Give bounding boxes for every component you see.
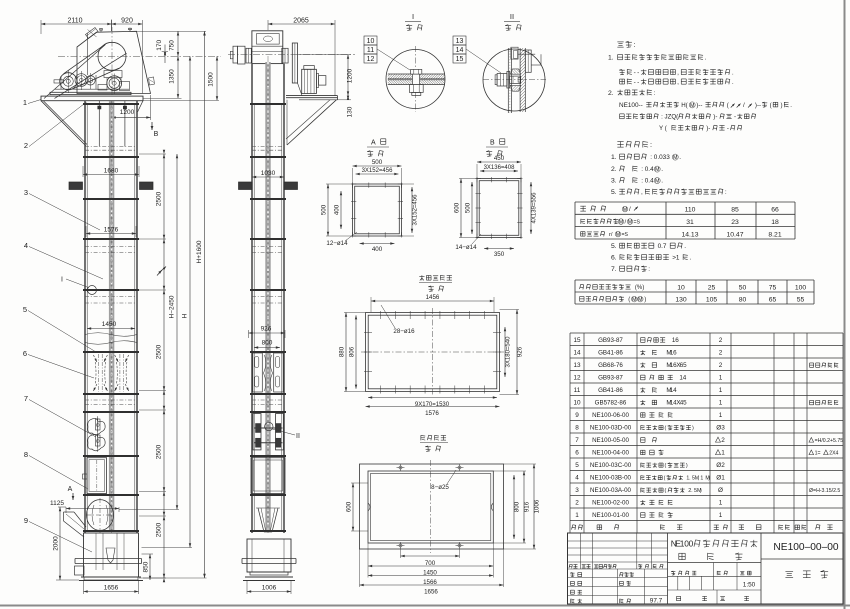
svg-text:8: 8 <box>575 425 579 432</box>
svg-text:GB93-87: GB93-87 <box>598 375 623 382</box>
svg-text:I: I <box>61 277 63 284</box>
svg-text:18: 18 <box>771 219 779 226</box>
svg-text:1: 1 <box>575 512 579 519</box>
svg-text:.: . <box>790 102 792 109</box>
svg-text:): ) <box>700 488 702 494</box>
svg-text:110: 110 <box>685 207 696 214</box>
svg-text:5.: 5. <box>611 189 617 196</box>
svg-text:Ø1: Ø1 <box>716 475 725 482</box>
svg-text:,: , <box>641 189 643 196</box>
svg-text:14: 14 <box>573 350 581 357</box>
svg-text:3: 3 <box>24 188 28 197</box>
svg-text:1: 1 <box>721 450 725 457</box>
svg-text:GB41-86: GB41-86 <box>598 387 623 394</box>
svg-text:/: / <box>743 102 745 109</box>
svg-text:Ø=H-3.15/2.5: Ø=H-3.15/2.5 <box>809 488 840 494</box>
svg-text:): ) <box>692 426 694 432</box>
svg-text:600: 600 <box>454 202 461 213</box>
svg-text:28−ø16: 28−ø16 <box>393 328 415 335</box>
svg-text:1680: 1680 <box>104 168 119 175</box>
svg-text:A: A <box>371 140 376 147</box>
svg-text:926: 926 <box>261 326 272 333</box>
svg-text:Ø: Ø <box>718 487 723 494</box>
svg-text:12: 12 <box>573 375 581 382</box>
svg-text:916: 916 <box>524 501 531 512</box>
svg-text:-: - <box>637 69 639 76</box>
svg-text:.: . <box>689 476 690 482</box>
svg-text:4: 4 <box>24 241 28 250</box>
svg-text:)--: )-- <box>755 102 761 109</box>
svg-text:14.13: 14.13 <box>681 231 698 238</box>
svg-text:1: 1 <box>719 412 723 419</box>
svg-text:5: 5 <box>683 362 687 369</box>
svg-text:Y (: Y ( <box>659 125 668 132</box>
svg-text:100: 100 <box>795 285 807 292</box>
svg-text:6.: 6. <box>611 255 617 262</box>
svg-text:1.: 1. <box>608 55 614 62</box>
svg-text:(: ( <box>665 463 667 469</box>
svg-text:NE100-03C-00: NE100-03C-00 <box>590 462 632 469</box>
svg-text:6: 6 <box>673 350 677 357</box>
svg-text:1: 1 <box>719 500 723 507</box>
svg-text:65: 65 <box>769 297 777 304</box>
svg-text:=S: =S <box>622 232 629 238</box>
svg-text:)--: )-- <box>696 102 702 109</box>
svg-text:800: 800 <box>262 340 273 347</box>
svg-text:2500: 2500 <box>156 522 163 537</box>
svg-text:750: 750 <box>169 40 176 51</box>
svg-text:.: . <box>690 255 692 262</box>
svg-text:600: 600 <box>346 501 353 512</box>
svg-text:66: 66 <box>771 207 779 214</box>
svg-text:: 0.4: : 0.4 <box>641 166 654 173</box>
svg-text:NE100-03D-00: NE100-03D-00 <box>590 425 632 432</box>
svg-text:4: 4 <box>575 475 579 482</box>
svg-text:GB68-76: GB68-76 <box>598 362 623 369</box>
svg-text:4: 4 <box>683 375 687 382</box>
svg-text:.: . <box>732 79 734 86</box>
svg-text:8−ø25: 8−ø25 <box>431 484 449 491</box>
svg-text:2065: 2065 <box>293 18 309 25</box>
svg-text:2X4: 2X4 <box>829 451 838 457</box>
svg-text:2000: 2000 <box>53 536 60 551</box>
svg-text:/: / <box>629 206 631 213</box>
svg-text:130: 130 <box>675 297 687 304</box>
svg-text:4X139=556: 4X139=556 <box>532 192 538 224</box>
svg-text:14−ø14: 14−ø14 <box>455 244 477 251</box>
svg-text:B: B <box>154 131 159 138</box>
svg-text:850: 850 <box>143 561 150 572</box>
svg-text:1: 1 <box>719 375 723 382</box>
svg-text:0: 0 <box>689 539 694 549</box>
svg-text:1656: 1656 <box>424 589 438 596</box>
svg-text:1006: 1006 <box>534 499 541 513</box>
svg-text:3.: 3. <box>611 178 617 185</box>
svg-text:1: 1 <box>700 476 703 482</box>
svg-text:15: 15 <box>573 337 581 344</box>
svg-text:NE100-03B-00: NE100-03B-00 <box>590 475 631 482</box>
svg-text:500: 500 <box>465 202 472 213</box>
svg-text:3X136=408: 3X136=408 <box>484 165 516 171</box>
svg-text:170: 170 <box>156 39 163 50</box>
svg-text:10: 10 <box>677 285 685 292</box>
svg-text:II: II <box>510 12 514 21</box>
svg-text:0.7: 0.7 <box>658 243 667 250</box>
svg-text:11: 11 <box>574 387 581 394</box>
svg-text:13: 13 <box>573 362 581 369</box>
svg-text:: 0.033: : 0.033 <box>650 154 670 161</box>
svg-text:1030: 1030 <box>261 170 276 177</box>
svg-text:1656: 1656 <box>104 585 119 592</box>
svg-text:12: 12 <box>367 56 375 63</box>
svg-text:6: 6 <box>675 337 679 344</box>
svg-text:5: 5 <box>23 305 27 314</box>
svg-text:3: 3 <box>575 487 579 494</box>
svg-text:80: 80 <box>739 297 747 304</box>
svg-text:GB5782-86: GB5782-86 <box>595 400 627 407</box>
svg-text:NE100-05-00: NE100-05-00 <box>592 437 629 444</box>
svg-text:=H/0.2+5.75: =H/0.2+5.75 <box>815 438 844 444</box>
svg-text:15: 15 <box>456 56 464 63</box>
svg-text:2: 2 <box>719 350 723 357</box>
svg-text:12−ø14: 12−ø14 <box>326 240 348 247</box>
svg-text:14: 14 <box>456 47 464 54</box>
svg-text:500: 500 <box>372 159 383 166</box>
svg-text:3X152=456: 3X152=456 <box>413 194 419 226</box>
svg-text:NE100-04-00: NE100-04-00 <box>592 450 629 457</box>
svg-text:1576: 1576 <box>104 227 119 234</box>
svg-text:1200: 1200 <box>120 109 135 116</box>
svg-text:1200: 1200 <box>347 68 354 83</box>
svg-text:400: 400 <box>372 246 383 253</box>
svg-text:)-: )- <box>713 114 717 121</box>
svg-text:B: B <box>490 140 495 147</box>
svg-text:7.: 7. <box>611 266 617 273</box>
svg-text:2110: 2110 <box>67 18 82 25</box>
svg-text:,: , <box>677 69 679 76</box>
svg-text:2: 2 <box>719 362 723 369</box>
svg-text:2500: 2500 <box>156 444 163 459</box>
svg-text:6: 6 <box>575 450 579 457</box>
svg-text:-: - <box>634 79 636 86</box>
svg-text:=S: =S <box>634 220 641 226</box>
svg-text:13: 13 <box>456 38 464 45</box>
svg-text:.: . <box>679 154 681 161</box>
svg-text:2.: 2. <box>611 166 617 173</box>
svg-text:II: II <box>296 433 300 440</box>
svg-text:GB93-87: GB93-87 <box>598 337 623 344</box>
svg-text:23: 23 <box>731 219 739 226</box>
svg-text:1: 1 <box>719 400 723 407</box>
svg-text:): ) <box>708 476 710 482</box>
svg-text:(: ( <box>628 297 630 303</box>
svg-text:I: I <box>412 12 414 21</box>
svg-text:-: - <box>634 69 636 76</box>
svg-text:9: 9 <box>24 516 28 525</box>
svg-text::: : <box>725 189 727 196</box>
svg-text:1=: 1= <box>815 451 821 457</box>
svg-text:,: , <box>677 79 679 86</box>
svg-text:11: 11 <box>367 47 374 54</box>
svg-text:.: . <box>661 178 663 185</box>
svg-text:(: ( <box>665 488 667 494</box>
svg-text:): ) <box>686 463 688 469</box>
svg-text:r/: r/ <box>609 232 613 238</box>
svg-text:.: . <box>684 243 686 250</box>
svg-text:7: 7 <box>575 437 579 444</box>
svg-text:Ø3: Ø3 <box>716 425 725 432</box>
svg-text:1006: 1006 <box>262 585 277 592</box>
svg-text:85: 85 <box>731 207 739 214</box>
svg-text:NE100-03A-00: NE100-03A-00 <box>590 487 631 494</box>
svg-text:75: 75 <box>769 285 777 292</box>
svg-text:3X152=456: 3X152=456 <box>362 168 394 174</box>
svg-text:,: , <box>698 476 699 482</box>
svg-text:1: 1 <box>23 98 27 107</box>
svg-text:6: 6 <box>23 349 27 358</box>
svg-text:): ) <box>780 102 782 109</box>
svg-text:(: ( <box>664 476 666 482</box>
svg-text:NE100-02-00: NE100-02-00 <box>592 500 629 507</box>
svg-text:7: 7 <box>24 394 28 403</box>
svg-text:1: 1 <box>719 512 723 519</box>
svg-text:.: . <box>661 166 663 173</box>
svg-text:10: 10 <box>573 400 581 407</box>
svg-text:9X170=1530: 9X170=1530 <box>415 402 450 408</box>
svg-text:NE100–00–00: NE100–00–00 <box>773 542 838 553</box>
svg-text:1:50: 1:50 <box>743 581 756 588</box>
svg-text:500: 500 <box>321 204 328 215</box>
svg-text:880: 880 <box>339 346 346 357</box>
svg-text:H: H <box>182 313 189 318</box>
svg-text:NE100-06-00: NE100-06-00 <box>592 412 629 419</box>
svg-text::: : <box>654 90 656 97</box>
svg-text:2500: 2500 <box>156 191 163 206</box>
svg-text:H−2450: H−2450 <box>169 295 176 318</box>
svg-text:-: - <box>734 114 736 121</box>
svg-text::: : <box>650 140 652 149</box>
svg-text:1576: 1576 <box>425 410 439 417</box>
svg-text:350: 350 <box>494 251 505 258</box>
svg-text:50: 50 <box>739 285 747 292</box>
svg-text:(%): (%) <box>635 285 644 291</box>
svg-text:-: - <box>727 125 729 132</box>
svg-text:450: 450 <box>494 155 505 162</box>
svg-text:1125: 1125 <box>50 500 64 507</box>
svg-text:2500: 2500 <box>156 344 163 359</box>
svg-text:2: 2 <box>721 437 725 444</box>
svg-text:Ø2: Ø2 <box>716 462 725 469</box>
svg-text::: : <box>634 40 636 49</box>
svg-text:8.21: 8.21 <box>768 231 781 238</box>
svg-text:-: - <box>637 79 639 86</box>
svg-text::: : <box>648 266 650 273</box>
svg-text:3X180=540: 3X180=540 <box>506 336 512 368</box>
svg-text:): ) <box>644 297 646 303</box>
svg-text:H+1600: H+1600 <box>196 240 203 263</box>
svg-text:>1: >1 <box>672 255 680 262</box>
svg-text:5.: 5. <box>611 243 617 250</box>
svg-text:GB41-86: GB41-86 <box>598 350 623 357</box>
svg-text:NE100--: NE100-- <box>619 102 643 109</box>
svg-text:.: . <box>732 69 734 76</box>
svg-text:1: 1 <box>719 387 723 394</box>
svg-text:2: 2 <box>24 141 28 150</box>
svg-text:920: 920 <box>121 18 133 25</box>
svg-text:5: 5 <box>575 462 579 469</box>
svg-text:: JZQ(: : JZQ( <box>661 114 679 121</box>
svg-text:.: . <box>705 55 707 62</box>
svg-text:10.47: 10.47 <box>726 231 743 238</box>
svg-text:H(: H( <box>681 102 688 109</box>
svg-text:)-: )- <box>706 125 710 132</box>
svg-text:1350: 1350 <box>169 69 176 84</box>
svg-text:A: A <box>68 486 73 493</box>
svg-text:10: 10 <box>367 38 375 45</box>
svg-text:926: 926 <box>517 346 524 357</box>
svg-text:2: 2 <box>575 500 579 507</box>
svg-text:800: 800 <box>514 501 521 512</box>
svg-text:2: 2 <box>719 337 723 344</box>
svg-text:400: 400 <box>334 204 341 215</box>
svg-text:9: 9 <box>575 412 579 419</box>
svg-text:1.: 1. <box>611 154 617 161</box>
svg-text:806: 806 <box>349 346 356 357</box>
svg-text:97.7: 97.7 <box>650 598 663 605</box>
svg-text:1450: 1450 <box>102 321 117 328</box>
svg-text:31: 31 <box>686 219 694 226</box>
svg-text:NE100-01-00: NE100-01-00 <box>592 512 629 519</box>
svg-text:: 0.4: : 0.4 <box>641 178 654 185</box>
svg-text:4: 4 <box>673 387 677 394</box>
svg-text:130: 130 <box>347 106 354 117</box>
svg-text:25: 25 <box>708 285 716 292</box>
svg-text:1500: 1500 <box>208 72 215 87</box>
svg-text:105: 105 <box>706 297 718 304</box>
svg-text:(: ( <box>665 426 667 432</box>
svg-text:55: 55 <box>797 297 805 304</box>
svg-text:8: 8 <box>24 450 28 459</box>
svg-text:5: 5 <box>683 400 687 407</box>
svg-text:1456: 1456 <box>426 294 440 301</box>
svg-text:2.: 2. <box>608 90 614 97</box>
